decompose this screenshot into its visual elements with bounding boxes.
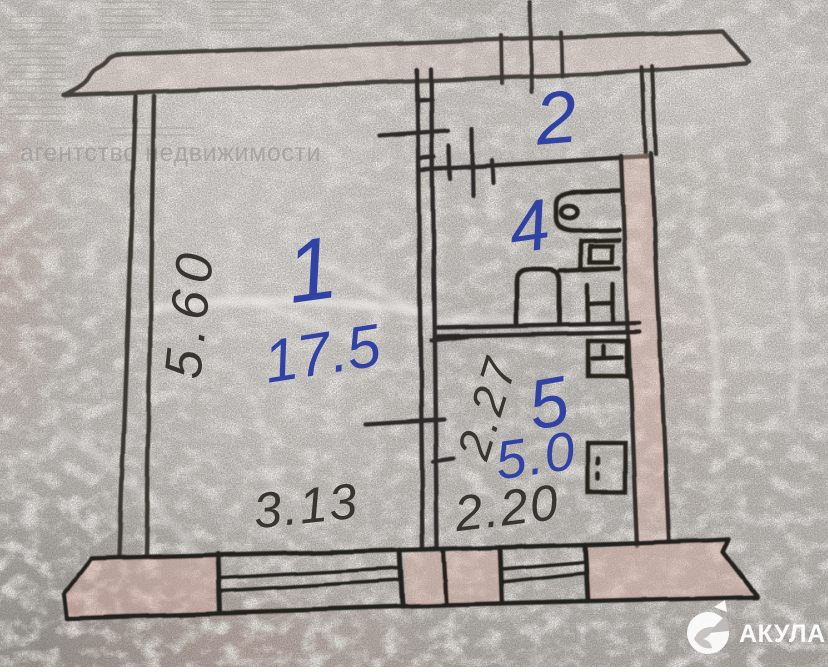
svg-text:АКУЛА: АКУЛА	[739, 620, 826, 648]
svg-text:агентство недвижимости: агентство недвижимости	[20, 139, 321, 167]
svg-text:3.13: 3.13	[251, 473, 362, 540]
svg-text:2: 2	[531, 74, 580, 160]
